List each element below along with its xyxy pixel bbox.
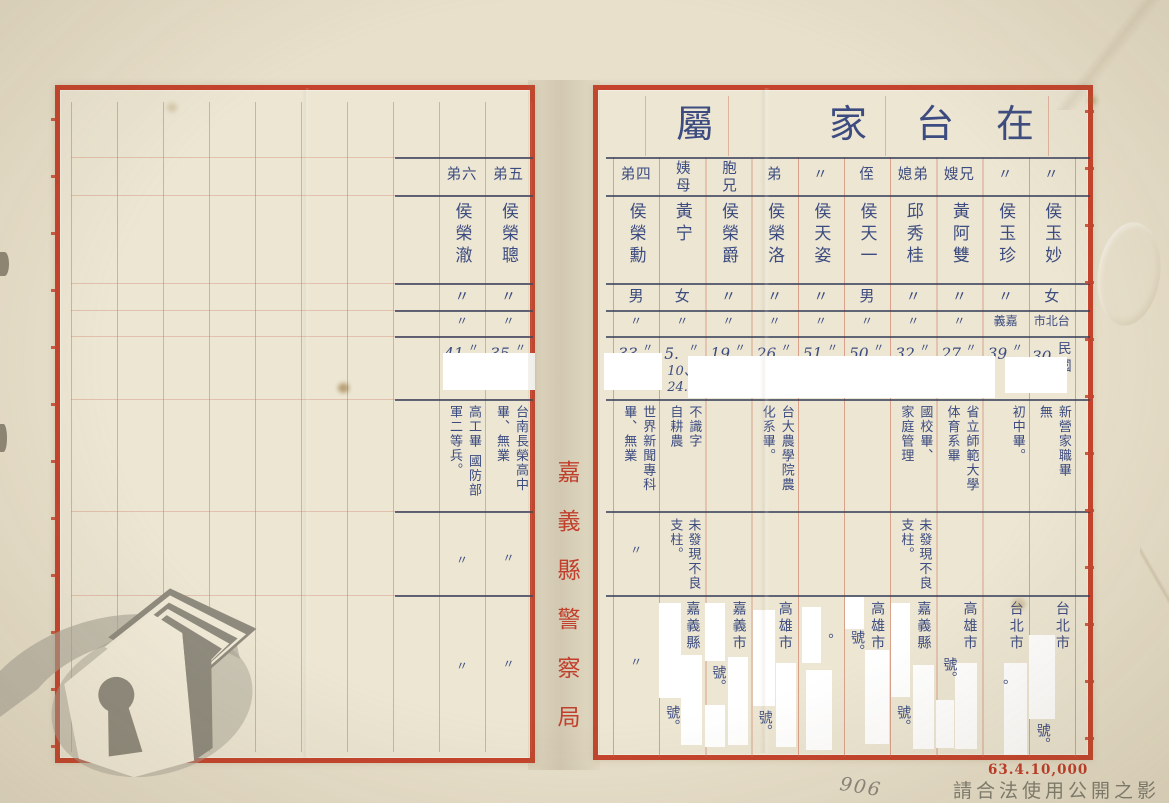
person-name: 侯玉妙 <box>1039 202 1064 268</box>
relationship-cell: 弟 <box>752 157 798 195</box>
gender-cell: 女 <box>659 283 705 310</box>
notes-cell: 〃 <box>613 511 659 595</box>
redaction-box <box>936 700 954 748</box>
address-cell: 高雄市 號。 <box>752 595 798 757</box>
person-column-fifth-brother: 弟五 侯榮聰 〃 〃 〃35. 台南長榮高中 畢、無業 〃 〃 <box>485 157 532 757</box>
person-name: 侯天一 <box>855 202 880 268</box>
gender-cell: 〃 <box>936 283 982 310</box>
birthplace-cell: 〃 <box>705 310 751 336</box>
redaction-box <box>776 663 796 747</box>
person-name: 侯榮爵 <box>716 202 741 268</box>
agency-name-stamp: 嘉義縣警察局 <box>549 460 583 754</box>
education-cell: 新營家職畢 無 <box>1029 399 1075 511</box>
education-cell <box>705 399 751 511</box>
name-cell: 侯天一 <box>844 195 890 283</box>
birthplace-cell: 〃 <box>752 310 798 336</box>
left-form-page: 弟六 侯榮澈 〃 〃 〃41 高工畢 國防部 軍二等兵。 〃 〃 弟五 侯榮聰 … <box>55 85 535 763</box>
name-cell: 侯天姿 <box>798 195 844 283</box>
name-cell: 侯榮聰 <box>485 195 532 283</box>
relationship-cell: 弟四 <box>613 157 659 195</box>
notes-cell <box>844 511 890 595</box>
notes-cell: 未發現不良 支柱。 <box>659 511 705 595</box>
name-cell: 侯玉珍 <box>983 195 1029 283</box>
address-cell: 高雄市 號。 <box>936 595 982 757</box>
relationship-cell: 弟五 <box>485 157 532 195</box>
relationship-cell: 〃 <box>983 157 1029 195</box>
notes-cell <box>983 511 1029 595</box>
person-name: 侯榮洛 <box>762 202 787 268</box>
usage-watermark-text: 請合法使用公開之影像 <box>953 776 1169 803</box>
person-column: 〃 侯玉珍 〃 義嘉 〃39. 初中畢。 台北市 。 <box>983 157 1029 757</box>
redaction-box <box>865 650 889 744</box>
person-column-sixth-brother: 弟六 侯榮澈 〃 〃 〃41 高工畢 國防部 軍二等兵。 〃 〃 <box>439 157 485 757</box>
birthplace-cell: 義嘉 <box>983 310 1029 336</box>
redaction-box <box>705 705 725 747</box>
birthplace-cell: 〃 <box>798 310 844 336</box>
education-cell: 台南長榮高中 畢、無業 <box>485 399 532 511</box>
education-cell: 高工畢 國防部 軍二等兵。 <box>439 399 485 511</box>
scan-edge-mark <box>0 424 7 452</box>
redaction-box <box>728 657 748 745</box>
address-cell: 〃 <box>485 595 532 757</box>
address-city: 嘉義市 <box>729 601 749 652</box>
person-column: 弟四 侯榮勳 男 〃 〃33. 世界新聞專科 畢、無業 〃 〃 <box>613 157 659 757</box>
address-cell: 嘉義市 號。 <box>705 595 751 757</box>
address-cell: 〃 <box>613 595 659 757</box>
name-cell: 黃宁 <box>659 195 705 283</box>
redaction-box <box>688 356 995 398</box>
person-column: 〃 侯天姿 〃 〃 〃51. 。 <box>798 157 844 757</box>
redaction-box <box>753 610 775 706</box>
redaction-box <box>806 670 832 750</box>
person-column: 嫂兄 黃阿雙 〃 〃 〃27. 省立師範大學 体育系畢 高雄市 號。 <box>936 157 982 757</box>
name-cell: 侯玉妙 <box>1029 195 1075 283</box>
birthplace-cell: 〃 <box>844 310 890 336</box>
relationship-cell: 〃 <box>798 157 844 195</box>
person-name: 侯榮澈 <box>450 202 475 268</box>
redaction-box <box>1005 357 1067 393</box>
redaction-box <box>604 353 662 390</box>
person-name: 侯榮勳 <box>624 202 649 268</box>
gender-cell: 女 <box>1029 283 1075 310</box>
relationship-cell: 侄 <box>844 157 890 195</box>
header-char: 台 <box>916 102 954 146</box>
address-city: 嘉義縣 <box>913 601 933 652</box>
notes-cell <box>752 511 798 595</box>
address-city: 高雄市 <box>960 601 980 652</box>
relationship-text: 弟六 <box>439 157 485 193</box>
name-cell: 侯榮勳 <box>613 195 659 283</box>
person-column: 侄 侯天一 男 〃 〃50. 高雄市 號。 <box>844 157 890 757</box>
education-cell: 不識字 自耕農 <box>659 399 705 511</box>
notes-cell <box>705 511 751 595</box>
birthplace-cell: 〃 <box>439 310 485 336</box>
redaction-box <box>891 603 910 697</box>
redaction-box <box>443 353 535 390</box>
education-cell: 省立師範大學 体育系畢 <box>936 399 982 511</box>
gender-cell: 〃 <box>752 283 798 310</box>
gender-cell: 〃 <box>890 283 936 310</box>
education-cell: 初中畢。 <box>983 399 1029 511</box>
name-cell: 侯榮澈 <box>439 195 485 283</box>
redaction-box <box>1029 635 1055 719</box>
birthplace-cell: 〃 <box>659 310 705 336</box>
pencil-page-number: 906 <box>837 771 882 799</box>
paper-crease <box>1140 545 1169 605</box>
birthplace-cell: 市北台 <box>1029 310 1075 336</box>
address-city: 高雄市 <box>867 601 887 652</box>
notes-cell <box>798 511 844 595</box>
person-column: 媳弟 邱秀桂 〃 〃 〃32. 國校畢、 家庭管理 未發現不良 支柱。 嘉義縣 … <box>890 157 936 757</box>
header-char: 屬 <box>676 102 714 146</box>
address-cell: 台北市 號。 <box>1029 595 1075 757</box>
gender-cell: 〃 <box>983 283 1029 310</box>
gender-cell: 〃 <box>439 283 485 310</box>
gender-cell: 男 <box>844 283 890 310</box>
address-city: 台北市 <box>1006 601 1026 652</box>
address-cell: 台北市 。 <box>983 595 1029 757</box>
embossed-seal <box>1091 218 1167 330</box>
redaction-box <box>705 603 725 661</box>
education-cell <box>844 399 890 511</box>
gender-cell: 〃 <box>705 283 751 310</box>
relationship-cell: 嫂兄 <box>936 157 982 195</box>
gender-cell: 男 <box>613 283 659 310</box>
person-name: 侯天姿 <box>808 202 833 268</box>
address-cell: 。 <box>798 595 844 757</box>
right-page-entries: 弟四 侯榮勳 男 〃 〃33. 世界新聞專科 畢、無業 〃 〃 姨母 黃宁 女 … <box>613 157 1075 757</box>
birthplace-cell: 〃 <box>485 310 532 336</box>
right-form-page: 屬 家 台 在 弟四 侯榮勳 男 〃 〃33. 世界新聞專科 畢、無業 〃 〃 … <box>593 85 1093 760</box>
education-cell <box>798 399 844 511</box>
header-char: 在 <box>996 102 1034 146</box>
notes-cell: 未發現不良 支柱。 <box>890 511 936 595</box>
header-char: 家 <box>829 102 867 146</box>
name-cell: 侯榮爵 <box>705 195 751 283</box>
gender-cell: 〃 <box>485 283 532 310</box>
notes-cell: 〃 <box>439 511 485 595</box>
relationship-text: 弟五 <box>485 157 532 193</box>
redaction-box <box>1004 663 1027 755</box>
notes-cell <box>936 511 982 595</box>
relationship-cell: 媳弟 <box>890 157 936 195</box>
person-name: 侯玉珍 <box>993 202 1018 268</box>
person-name: 黃阿雙 <box>947 202 972 268</box>
birthplace-cell: 〃 <box>890 310 936 336</box>
address-city: 高雄市 <box>775 601 795 652</box>
address-cell: 嘉義縣 號。 <box>890 595 936 757</box>
relationship-cell: 胞兄 <box>705 157 751 195</box>
gender-cell: 〃 <box>798 283 844 310</box>
birthplace-cell: 〃 <box>613 310 659 336</box>
scan-edge-mark <box>0 252 9 276</box>
education-cell: 國校畢、 家庭管理 <box>890 399 936 511</box>
person-column: 姨母 黃宁 女 〃 〃5.10、 24. 不識字 自耕農 未發現不良 支柱。 嘉… <box>659 157 705 757</box>
notes-cell <box>1029 511 1075 595</box>
birthplace-cell: 〃 <box>936 310 982 336</box>
address-city: 嘉義縣 <box>682 601 702 652</box>
address-cell: 〃 <box>439 595 485 757</box>
person-name: 邱秀桂 <box>901 202 926 268</box>
redaction-box <box>681 655 702 745</box>
name-cell: 侯榮洛 <box>752 195 798 283</box>
person-name: 黃宁 <box>670 202 695 246</box>
redaction-box <box>845 597 864 629</box>
relationship-cell: 弟六 <box>439 157 485 195</box>
address-cell: 高雄市 號。 <box>844 595 890 757</box>
address-cell: 嘉義縣 號。 <box>659 595 705 757</box>
person-column: 〃 侯玉妙 女 市北台 民國30. 新營家職畢 無 台北市 號。 <box>1029 157 1075 757</box>
person-column: 胞兄 侯榮爵 〃 〃 〃19. 嘉義市 號。 <box>705 157 751 757</box>
scanned-document-page: { "colors": { "paper": "#ece6d3", "borde… <box>0 0 1169 803</box>
redaction-box <box>913 665 934 749</box>
left-page-entries: 弟六 侯榮澈 〃 〃 〃41 高工畢 國防部 軍二等兵。 〃 〃 弟五 侯榮聰 … <box>439 157 532 757</box>
relationship-cell: 〃 <box>1029 157 1075 195</box>
person-column: 弟 侯榮洛 〃 〃 〃26. 台大農學院農 化系畢。 高雄市 號。 <box>752 157 798 757</box>
relationship-cell: 姨母 <box>659 157 705 195</box>
name-cell: 黃阿雙 <box>936 195 982 283</box>
notes-cell: 〃 <box>485 511 532 595</box>
redaction-box <box>659 603 681 698</box>
address-city: 台北市 <box>1052 601 1072 652</box>
education-cell: 世界新聞專科 畢、無業 <box>613 399 659 511</box>
education-cell: 台大農學院農 化系畢。 <box>752 399 798 511</box>
name-cell: 邱秀桂 <box>890 195 936 283</box>
person-name: 侯榮聰 <box>496 202 521 268</box>
